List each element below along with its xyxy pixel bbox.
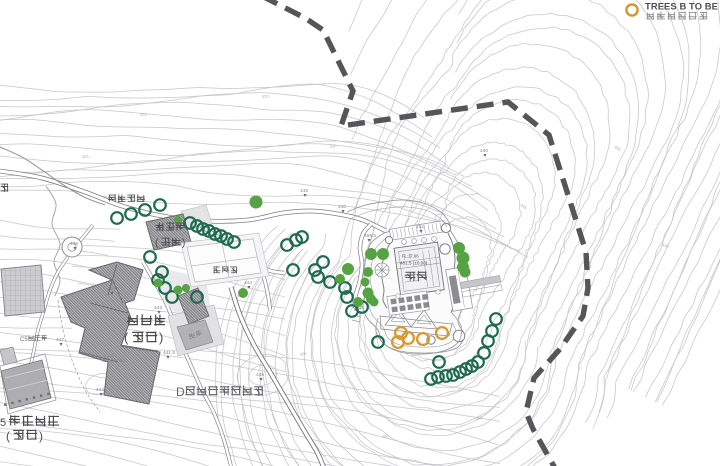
svg-text:481.5 (±0.00): 481.5 (±0.00) (400, 261, 428, 266)
svg-text:440: 440 (480, 148, 488, 154)
svg-text:481.5(±0.00): 481.5(±0.00) (102, 358, 125, 363)
svg-text:(: ( (6, 429, 10, 443)
svg-text:445: 445 (107, 286, 115, 292)
svg-text:TREES B TO BE M: TREES B TO BE M (645, 1, 720, 12)
svg-text:445: 445 (70, 241, 78, 247)
svg-text:430: 430 (262, 93, 270, 99)
svg-text:445: 445 (300, 188, 308, 194)
svg-text:444: 444 (244, 280, 252, 286)
svg-text:): ) (182, 238, 185, 249)
svg-text:425: 425 (82, 154, 90, 159)
svg-text:440: 440 (338, 204, 346, 210)
svg-text:446: 446 (256, 372, 264, 378)
svg-text:(: ( (124, 330, 129, 345)
svg-text:D: D (176, 385, 185, 399)
svg-text:1F: 1F (147, 228, 153, 233)
svg-text:452: 452 (416, 224, 424, 230)
svg-text:444: 444 (96, 387, 104, 393)
svg-text:C5: C5 (20, 337, 28, 343)
svg-text:443: 443 (154, 305, 162, 311)
svg-text:435: 435 (140, 112, 148, 117)
svg-text:): ) (159, 330, 163, 345)
svg-text:441.5: 441.5 (163, 350, 175, 356)
svg-text:447: 447 (56, 337, 64, 343)
svg-text:458.5: 458.5 (364, 233, 376, 239)
svg-text:): ) (39, 429, 43, 443)
svg-text:5: 5 (0, 417, 6, 429)
svg-text:FL:17.66: FL:17.66 (402, 254, 419, 259)
